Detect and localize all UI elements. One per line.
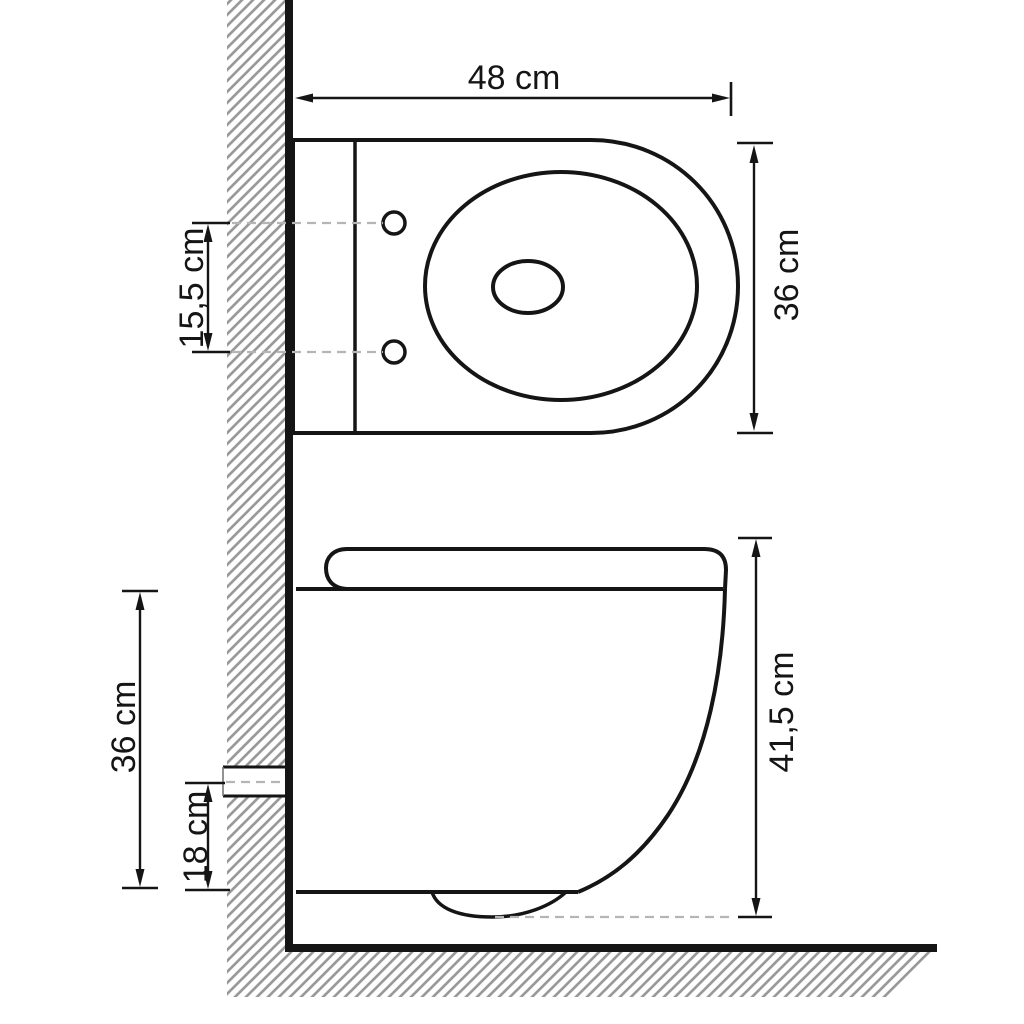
arrow-right bbox=[712, 94, 730, 103]
arrow-up bbox=[752, 539, 761, 557]
dim-depth-36: 36 cm bbox=[737, 143, 806, 433]
bowl-front-curve bbox=[578, 589, 725, 892]
dim-total-height-label: 41,5 cm bbox=[763, 652, 801, 773]
dim-outlet-height-18: 18 cm bbox=[177, 783, 230, 890]
outlet-curve bbox=[432, 892, 566, 917]
wall-pipe bbox=[223, 767, 286, 796]
mount-hole-bottom bbox=[383, 341, 405, 363]
dim-width-48: 48 cm bbox=[295, 59, 731, 116]
diagram-canvas: 48 cm 36 cm 15,5 cm 36 cm 18 cm bbox=[0, 0, 1024, 1024]
arrow-left bbox=[295, 94, 313, 103]
wall-hatch bbox=[227, 0, 288, 997]
dim-hole-spacing-155: 15,5 cm bbox=[173, 223, 230, 352]
arrow-down bbox=[750, 413, 759, 431]
mount-hole-top bbox=[383, 212, 405, 234]
dim-hole-spacing-label: 15,5 cm bbox=[173, 228, 211, 349]
arrow-up bbox=[750, 145, 759, 163]
arrow-down bbox=[136, 869, 145, 887]
toilet-outline-top bbox=[293, 140, 738, 433]
dim-outlet-height-label: 18 cm bbox=[177, 791, 215, 884]
floor-hatch bbox=[288, 952, 937, 997]
dim-body-height-36: 36 cm bbox=[105, 591, 158, 888]
dim-depth-label: 36 cm bbox=[768, 229, 806, 322]
toilet-dimension-diagram: 48 cm 36 cm 15,5 cm 36 cm 18 cm bbox=[0, 0, 1024, 1024]
dim-body-height-label: 36 cm bbox=[105, 681, 143, 774]
arrow-up bbox=[136, 592, 145, 610]
arrow-down bbox=[752, 898, 761, 916]
dim-total-height-415: 41,5 cm bbox=[738, 538, 801, 917]
dim-width-label: 48 cm bbox=[468, 59, 561, 97]
side-view bbox=[296, 549, 733, 917]
top-view bbox=[232, 140, 738, 433]
floor-line bbox=[285, 944, 937, 952]
seat-profile bbox=[326, 549, 726, 589]
